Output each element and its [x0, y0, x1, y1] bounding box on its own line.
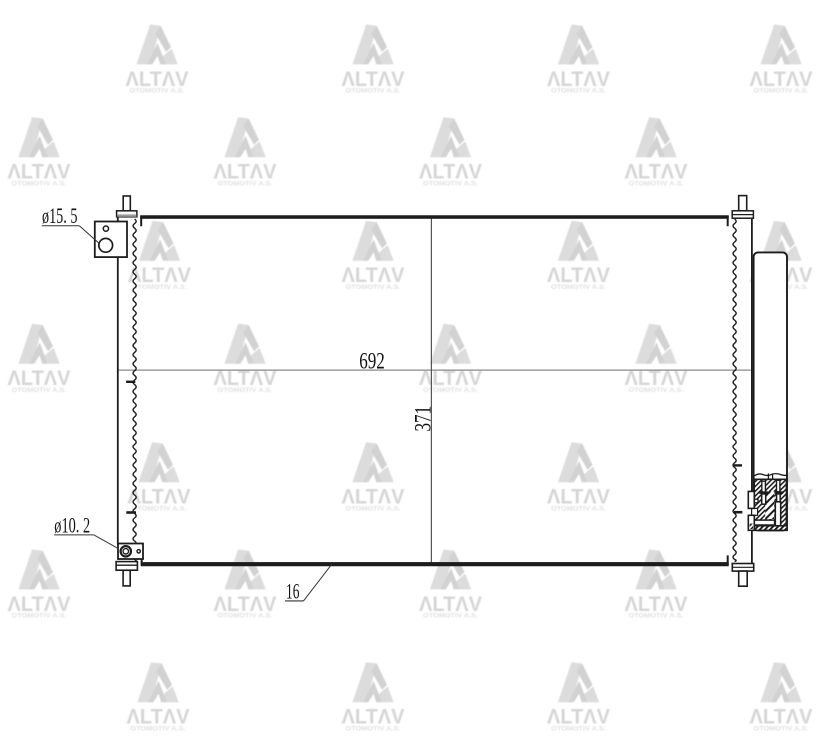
svg-text:OTOMOTIV A.S.: OTOMOTIV A.S. — [754, 725, 809, 732]
svg-text:692: 692 — [359, 349, 385, 374]
svg-text:ø10. 2: ø10. 2 — [54, 512, 90, 537]
svg-text:OTOMOTIV A.S.: OTOMOTIV A.S. — [551, 88, 606, 95]
svg-text:OTOMOTIV A.S.: OTOMOTIV A.S. — [12, 180, 67, 187]
svg-text:OTOMOTIV A.S.: OTOMOTIV A.S. — [12, 613, 67, 620]
svg-text:OTOMOTIV A.S.: OTOMOTIV A.S. — [218, 387, 273, 394]
svg-text:OTOMOTIV A.S.: OTOMOTIV A.S. — [551, 725, 606, 732]
svg-text:ø15. 5: ø15. 5 — [42, 203, 77, 228]
svg-text:OTOMOTIV A.S.: OTOMOTIV A.S. — [423, 613, 478, 620]
svg-text:OTOMOTIV A.S.: OTOMOTIV A.S. — [12, 387, 67, 394]
svg-text:371: 371 — [411, 406, 436, 432]
svg-text:OTOMOTIV A.S.: OTOMOTIV A.S. — [551, 284, 606, 291]
svg-text:16: 16 — [286, 578, 299, 603]
svg-text:OTOMOTIV A.S.: OTOMOTIV A.S. — [346, 284, 401, 291]
svg-text:OTOMOTIV A.S.: OTOMOTIV A.S. — [346, 88, 401, 95]
svg-text:OTOMOTIV A.S.: OTOMOTIV A.S. — [551, 505, 606, 512]
svg-text:OTOMOTIV A.S.: OTOMOTIV A.S. — [132, 284, 187, 291]
svg-text:OTOMOTIV A.S.: OTOMOTIV A.S. — [346, 505, 401, 512]
svg-text:OTOMOTIV A.S.: OTOMOTIV A.S. — [423, 180, 478, 187]
svg-text:OTOMOTIV A.S.: OTOMOTIV A.S. — [132, 505, 187, 512]
svg-text:OTOMOTIV A.S.: OTOMOTIV A.S. — [629, 613, 684, 620]
svg-text:OTOMOTIV A.S.: OTOMOTIV A.S. — [346, 725, 401, 732]
svg-text:OTOMOTIV A.S.: OTOMOTIV A.S. — [754, 88, 809, 95]
svg-text:OTOMOTIV A.S.: OTOMOTIV A.S. — [218, 613, 273, 620]
svg-text:OTOMOTIV A.S.: OTOMOTIV A.S. — [218, 180, 273, 187]
svg-text:OTOMOTIV A.S.: OTOMOTIV A.S. — [131, 725, 186, 732]
svg-text:OTOMOTIV A.S.: OTOMOTIV A.S. — [130, 88, 185, 95]
svg-text:OTOMOTIV A.S.: OTOMOTIV A.S. — [629, 387, 684, 394]
svg-text:OTOMOTIV A.S.: OTOMOTIV A.S. — [629, 180, 684, 187]
